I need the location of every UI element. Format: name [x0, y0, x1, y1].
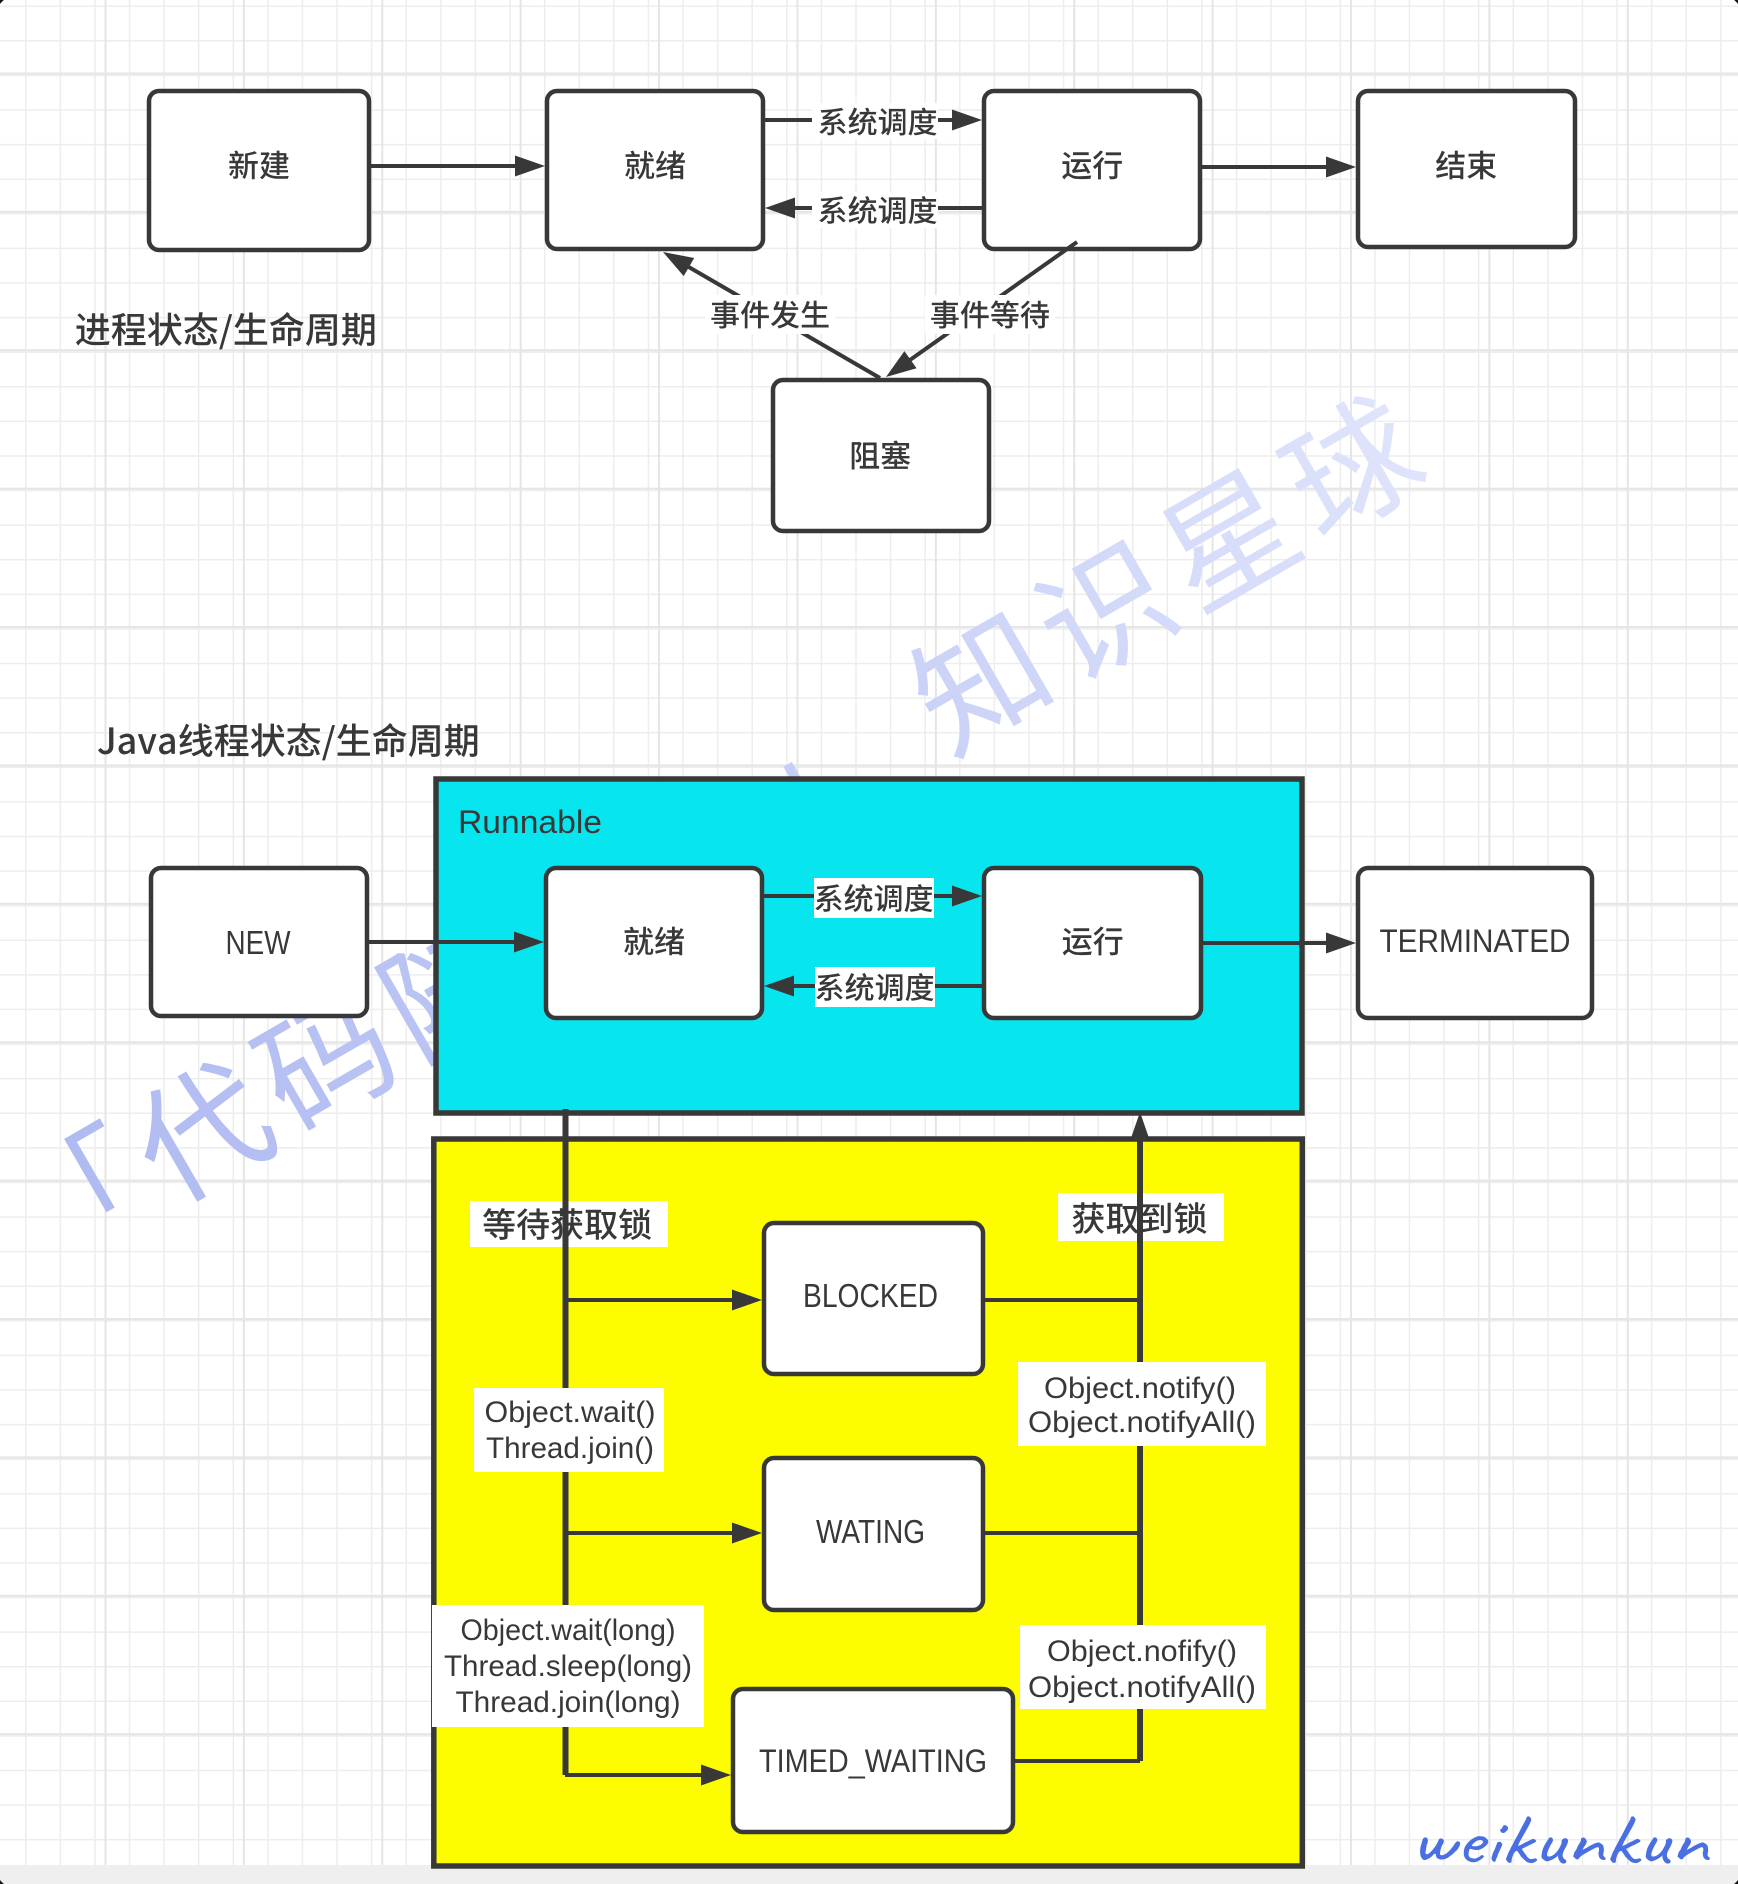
- svg-text:BLOCKED: BLOCKED: [803, 1277, 938, 1314]
- svg-text:Object.wait(): Object.wait(): [485, 1396, 656, 1429]
- svg-text:Object.notifyAll(): Object.notifyAll(): [1028, 1406, 1256, 1439]
- svg-text:WATING: WATING: [816, 1513, 925, 1550]
- svg-text:Object.notify(): Object.notify(): [1044, 1372, 1236, 1405]
- svg-text:Runnable: Runnable: [458, 804, 602, 840]
- svg-text:Object.wait(long): Object.wait(long): [461, 1614, 676, 1647]
- svg-text:TERMINATED: TERMINATED: [1380, 923, 1571, 959]
- svg-text:NEW: NEW: [226, 924, 292, 961]
- svg-text:Thread.sleep(long): Thread.sleep(long): [444, 1650, 692, 1683]
- svg-text:Object.nofify(): Object.nofify(): [1047, 1635, 1237, 1668]
- svg-text:Thread.join(long): Thread.join(long): [456, 1686, 681, 1719]
- svg-text:Object.notifyAll(): Object.notifyAll(): [1028, 1671, 1256, 1704]
- svg-text:TIMED_WAITING: TIMED_WAITING: [759, 1743, 987, 1779]
- svg-text:Thread.join(): Thread.join(): [486, 1432, 654, 1465]
